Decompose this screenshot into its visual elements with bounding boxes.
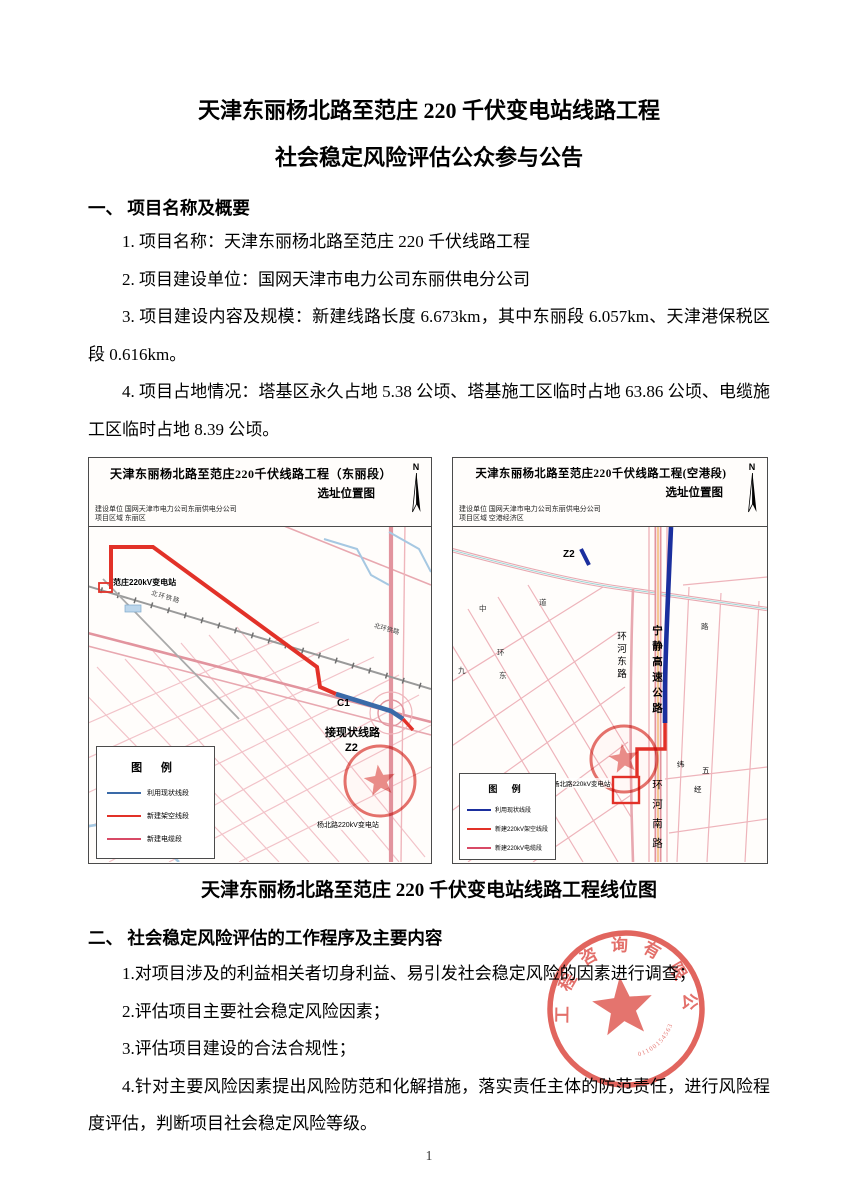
map-body-konggang: Z2 环河东路 宁静高速公路 环河南路 杨北路220kV变电站 纬 五 经 中 …: [453, 527, 767, 862]
label-point-z2: Z2: [345, 742, 358, 754]
route-new-overhead-line: [111, 547, 336, 694]
legend-line-overhead: [467, 828, 491, 830]
label-five: 五: [702, 765, 710, 776]
site-maps: 天津东丽杨北路至范庄220千伏线路工程（东丽段） 选址位置图 建设单位 国网天津…: [88, 457, 770, 864]
page-number: 1: [88, 1148, 770, 1164]
route-existing-line: [665, 527, 671, 723]
legend-line-cable: [107, 838, 141, 840]
map-title-konggang: 天津东丽杨北路至范庄220千伏线路工程(空港段): [453, 458, 767, 481]
legend-line-existing: [467, 809, 491, 811]
label-road-char: 九: [458, 665, 466, 676]
map-panel-konggang: 天津东丽杨北路至范庄220千伏线路工程(空港段) 选址位置图 建设单位 国网天津…: [452, 457, 768, 864]
map-callout-box: [125, 605, 141, 612]
water-line: [389, 532, 431, 572]
arterial-road: [274, 527, 431, 585]
label-point-c1: C1: [337, 698, 350, 709]
section-1-item-1: 1. 项目名称：天津东丽杨北路至范庄 220 千伏线路工程: [88, 223, 770, 261]
figure-caption: 天津东丽杨北路至范庄 220 千伏变电站线路工程线位图: [88, 877, 770, 905]
document-page: 天津东丽杨北路至范庄 220 千伏变电站线路工程 社会稳定风险评估公众参与公告 …: [0, 0, 848, 1200]
map-header-konggang: 天津东丽杨北路至范庄220千伏线路工程(空港段) 选址位置图 建设单位 国网天津…: [453, 458, 767, 527]
north-arrow-icon: N: [408, 463, 424, 519]
label-road-char: 中: [479, 603, 487, 614]
legend-title: 图 例: [97, 759, 214, 775]
document-title-line1: 天津东丽杨北路至范庄 220 千伏变电站线路工程: [88, 96, 770, 126]
legend-item-overhead: 新建220kV架空线段: [467, 824, 555, 833]
label-road-char: 路: [701, 621, 709, 632]
document-content: 天津东丽杨北路至范庄 220 千伏变电站线路工程 社会稳定风险评估公众参与公告 …: [0, 0, 848, 1164]
label-substation-fanzhuang: 范庄220kV变电站: [113, 577, 176, 588]
legend-item-overhead: 新建架空线段: [107, 811, 214, 821]
label-road-char: 东: [499, 670, 507, 681]
label-jing: 经: [694, 784, 702, 795]
company-seal-stamp: 工程咨询有限公司 01100154563: [543, 926, 709, 1092]
map-panel-dongli: 天津东丽杨北路至范庄220千伏线路工程（东丽段） 选址位置图 建设单位 国网天津…: [88, 457, 432, 864]
legend-box-dongli: 图 例 利用现状线段 新建架空线段 新建电缆段: [96, 746, 215, 859]
label-substation-yangbeilu: 杨北路220kV变电站: [553, 778, 610, 788]
legend-item-existing: 利用现状线段: [107, 788, 214, 798]
railway-line: [89, 585, 431, 689]
label-wei: 纬: [676, 759, 685, 771]
compass-needle-icon: [410, 472, 423, 514]
section-1-heading: 一、 项目名称及概要: [88, 193, 770, 223]
map-meta-konggang: 建设单位 国网天津市电力公司东丽供电分公司 项目区域 空港经济区: [459, 505, 601, 523]
arterial-road: [89, 645, 431, 735]
legend-item-existing: 利用现状线段: [467, 805, 555, 814]
label-substation-yangbeilu: 杨北路220kV变电站: [317, 820, 379, 830]
legend-item-cable: 新建电缆段: [107, 834, 214, 844]
map-seal-stamp: [345, 746, 415, 816]
seal-serial-number: 01100154563: [637, 1022, 674, 1058]
legend-line-cable: [467, 847, 491, 849]
map-meta-dongli: 建设单位 国网天津市电力公司东丽供电分公司 项目区域 东丽区: [95, 505, 237, 523]
label-connect-existing: 接现状线路: [325, 724, 380, 740]
map-region-konggang: 项目区域 空港经济区: [459, 514, 601, 523]
legend-item-cable: 新建220kV电缆段: [467, 843, 555, 852]
legend-line-overhead: [107, 815, 141, 817]
map-header-dongli: 天津东丽杨北路至范庄220千伏线路工程（东丽段） 选址位置图 建设单位 国网天津…: [89, 458, 431, 527]
map-subtitle-dongli: 选址位置图: [89, 485, 431, 501]
map-subtitle-konggang: 选址位置图: [453, 484, 767, 500]
map-builder-dongli: 建设单位 国网天津市电力公司东丽供电分公司: [95, 505, 237, 514]
label-point-z2: Z2: [563, 549, 575, 560]
compass-needle-icon: [746, 472, 759, 514]
legend-line-existing: [107, 792, 141, 794]
label-ring-south-road: 环河南路: [650, 779, 665, 857]
z2-tick-mark: [581, 549, 589, 565]
legend-title: 图 例: [460, 782, 555, 795]
label-road-char: 环: [497, 647, 505, 658]
label-road-char: 道: [539, 597, 547, 608]
star-icon: [590, 974, 655, 1037]
map-title-dongli: 天津东丽杨北路至范庄220千伏线路工程（东丽段）: [89, 458, 431, 482]
north-arrow-icon: N: [744, 463, 760, 519]
section-1-item-4: 4. 项目占地情况：塔基区永久占地 5.38 公顷、塔基施工区临时占地 63.8…: [88, 373, 770, 448]
label-ring-east-road: 环河东路: [613, 631, 627, 681]
section-1-item-2: 2. 项目建设单位：国网天津市电力公司东丽供电分公司: [88, 261, 770, 299]
legend-box-konggang: 图 例 利用现状线段 新建220kV架空线段 新建220kV电缆段: [459, 773, 556, 860]
map-builder-konggang: 建设单位 国网天津市电力公司东丽供电分公司: [459, 505, 601, 514]
document-title-line2: 社会稳定风险评估公众参与公告: [88, 143, 770, 173]
street-grid-right: [677, 587, 759, 862]
map-body-dongli: 范庄220kV变电站 北环铁路 北环铁路 接现状线路 C1 Z2 杨北路220k…: [89, 527, 431, 862]
section-1-item-3: 3. 项目建设内容及规模：新建线路长度 6.673km，其中东丽段 6.057k…: [88, 298, 770, 373]
map-region-dongli: 项目区域 东丽区: [95, 514, 237, 523]
label-ningjing-expressway: 宁静高速公路: [650, 625, 665, 718]
